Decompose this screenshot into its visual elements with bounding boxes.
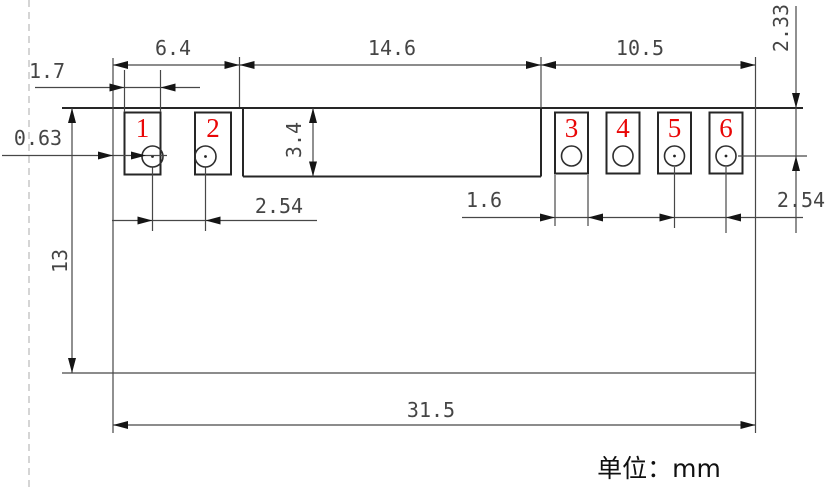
arrowhead	[540, 214, 555, 222]
arrowhead	[792, 156, 800, 171]
arrowhead	[206, 217, 221, 225]
dim-label-1-6: 1.6	[466, 188, 502, 212]
dim-label-10-5: 10.5	[616, 36, 664, 60]
arrowhead	[541, 61, 556, 69]
drawing-sheet: 1 2 3 4 5 6 6.4 14.6 10.5 1.7 0.63	[0, 0, 836, 490]
pads: 1 2 3 4 5 6	[125, 113, 743, 175]
pad-1-label: 1	[136, 113, 150, 143]
arrowhead	[240, 61, 255, 69]
pad-6-label: 6	[719, 113, 733, 143]
dim-overall-width: 31.5	[113, 398, 756, 429]
pad-5-label: 5	[668, 113, 682, 143]
dim-label-0-63: 0.63	[14, 126, 62, 150]
pad-2-hole-center-mark	[204, 155, 207, 158]
pad-4-hole	[613, 146, 633, 166]
pad-2-label: 2	[206, 113, 220, 143]
arrowhead	[110, 84, 125, 92]
arrowhead	[588, 214, 603, 222]
arrowhead	[792, 93, 800, 108]
dim-left-pad-width: 1.7	[29, 59, 200, 112]
dim-top-row: 6.4 14.6 10.5	[113, 36, 756, 69]
arrowhead	[113, 421, 128, 429]
dim-label-3-4: 3.4	[282, 122, 306, 158]
arrowhead	[526, 61, 541, 69]
dim-middle-depth: 3.4	[282, 108, 317, 177]
pad-5-hole-center-mark	[673, 155, 676, 158]
dim-label-2-54-right: 2.54	[777, 188, 825, 212]
dim-label-2-54-left: 2.54	[255, 194, 303, 218]
arrowhead	[309, 108, 317, 123]
arrowhead	[225, 61, 240, 69]
arrowhead	[131, 152, 146, 160]
arrowhead	[138, 217, 153, 225]
dimension-drawing-canvas: 1 2 3 4 5 6 6.4 14.6 10.5 1.7 0.63	[0, 0, 836, 490]
arrowhead	[741, 61, 756, 69]
dim-label-2-33: 2.33	[769, 4, 793, 52]
dim-label-1-7: 1.7	[29, 59, 65, 83]
pad-3-label: 3	[565, 113, 579, 143]
arrowhead	[726, 214, 741, 222]
dim-label-14-6: 14.6	[368, 36, 416, 60]
pad-3-hole	[562, 146, 582, 166]
units-label: 单位：mm	[597, 454, 721, 483]
arrowhead	[68, 358, 76, 373]
pad-6-hole-center-mark	[725, 155, 728, 158]
arrowhead	[660, 214, 675, 222]
arrowhead	[113, 61, 128, 69]
arrowhead	[741, 421, 756, 429]
pad-4-label: 4	[616, 113, 630, 143]
arrowhead	[161, 84, 176, 92]
arrowhead	[309, 162, 317, 177]
dim-label-6-4: 6.4	[155, 36, 191, 60]
dim-label-31-5: 31.5	[407, 398, 455, 422]
dim-label-13: 13	[48, 249, 72, 273]
units-note: 单位：mm	[597, 454, 721, 483]
arrowhead	[98, 152, 113, 160]
arrowhead	[68, 108, 76, 123]
